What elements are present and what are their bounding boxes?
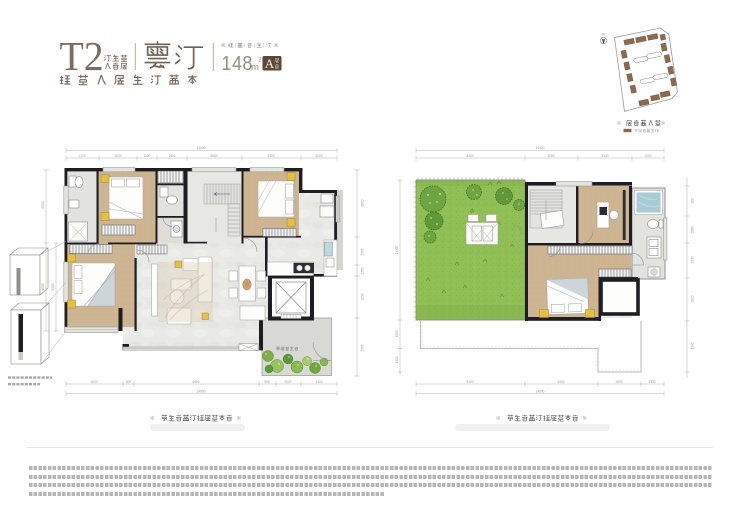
svg-text:1300: 1300 <box>315 380 322 384</box>
svg-text:148: 148 <box>222 52 253 75</box>
svg-text:8400: 8400 <box>466 154 473 158</box>
svg-text:1700: 1700 <box>78 154 85 158</box>
svg-text:m: m <box>251 62 259 73</box>
svg-text:2000: 2000 <box>644 154 651 158</box>
svg-text:1350: 1350 <box>648 380 655 384</box>
svg-text:2230: 2230 <box>361 293 365 300</box>
svg-text:4400: 4400 <box>557 380 564 384</box>
svg-text:14000: 14000 <box>536 146 545 150</box>
svg-text:500: 500 <box>126 380 132 384</box>
svg-text:A: A <box>265 56 275 71</box>
svg-text:3300: 3300 <box>51 283 55 290</box>
svg-text:2300: 2300 <box>361 248 365 255</box>
svg-text:8400: 8400 <box>466 380 473 384</box>
svg-text:3000: 3000 <box>90 380 97 384</box>
svg-text:2000: 2000 <box>114 154 121 158</box>
svg-text:T2: T2 <box>60 33 104 79</box>
svg-text:3050: 3050 <box>210 154 217 158</box>
svg-text:900: 900 <box>264 380 270 384</box>
svg-text:1500: 1500 <box>168 154 175 158</box>
svg-text:2: 2 <box>258 58 262 64</box>
svg-text:2020: 2020 <box>691 295 695 302</box>
svg-text:2860: 2860 <box>691 226 695 233</box>
svg-text:6000: 6000 <box>41 283 45 290</box>
svg-text:1300: 1300 <box>361 267 365 274</box>
svg-text:11300: 11300 <box>395 245 399 254</box>
svg-text:14000: 14000 <box>536 390 545 394</box>
svg-text:2300: 2300 <box>361 344 365 351</box>
svg-text:1390: 1390 <box>395 356 399 363</box>
svg-text:2230: 2230 <box>691 256 695 263</box>
svg-text:N: N <box>602 33 605 37</box>
svg-text:2000: 2000 <box>284 380 291 384</box>
svg-text:2100: 2100 <box>267 154 274 158</box>
svg-text:3050: 3050 <box>547 154 554 158</box>
svg-text:14600: 14600 <box>197 390 206 394</box>
svg-text:900: 900 <box>691 198 695 204</box>
svg-text:1100: 1100 <box>144 154 151 158</box>
svg-text:2140: 2140 <box>691 342 695 349</box>
svg-text:6000: 6000 <box>41 201 45 208</box>
svg-text:6400: 6400 <box>192 380 199 384</box>
svg-text:2000: 2000 <box>315 154 322 158</box>
svg-text:2500: 2500 <box>615 380 622 384</box>
svg-text:14600: 14600 <box>197 146 206 150</box>
svg-text:3130: 3130 <box>601 154 608 158</box>
svg-text:6000: 6000 <box>361 199 365 206</box>
svg-text:1090: 1090 <box>395 330 399 337</box>
